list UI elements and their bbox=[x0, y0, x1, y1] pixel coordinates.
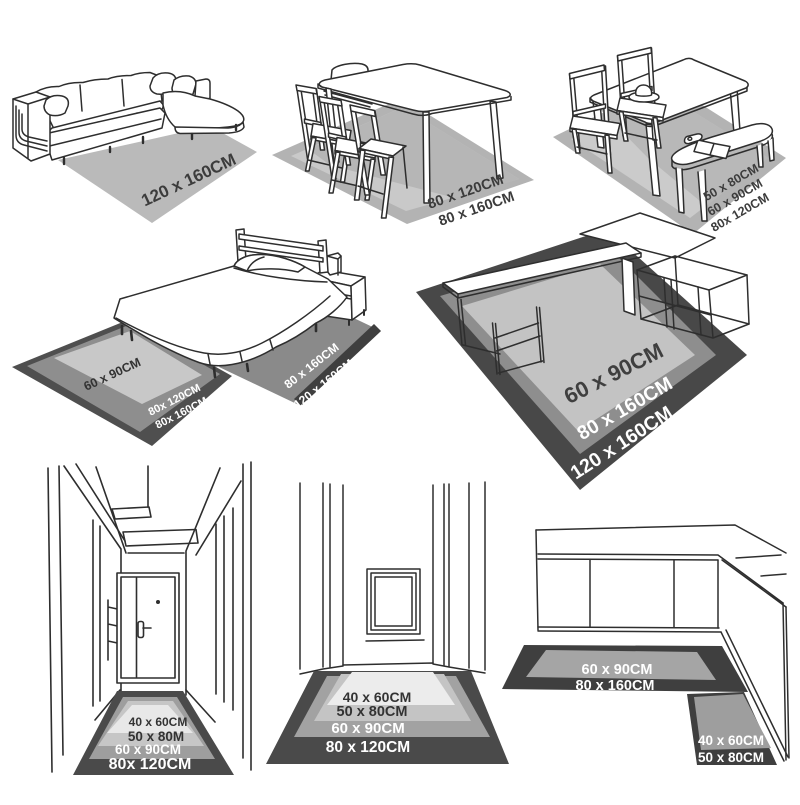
svg-text:40 x 60CM: 40 x 60CM bbox=[698, 733, 764, 748]
svg-text:80 x 160CM: 80 x 160CM bbox=[576, 678, 655, 694]
svg-text:80 x 120CM: 80 x 120CM bbox=[326, 739, 410, 756]
svg-text:50 x 80CM: 50 x 80CM bbox=[698, 750, 764, 765]
svg-text:60 x 90CM: 60 x 90CM bbox=[115, 742, 181, 757]
svg-text:60 x 90CM: 60 x 90CM bbox=[582, 662, 653, 678]
svg-text:80x 120CM: 80x 120CM bbox=[109, 756, 192, 773]
svg-text:50 x 80CM: 50 x 80CM bbox=[337, 704, 408, 720]
svg-text:60 x 90CM: 60 x 90CM bbox=[331, 720, 404, 737]
svg-text:40 x 60CM: 40 x 60CM bbox=[343, 689, 411, 705]
svg-text:40 x 60CM: 40 x 60CM bbox=[129, 715, 188, 729]
